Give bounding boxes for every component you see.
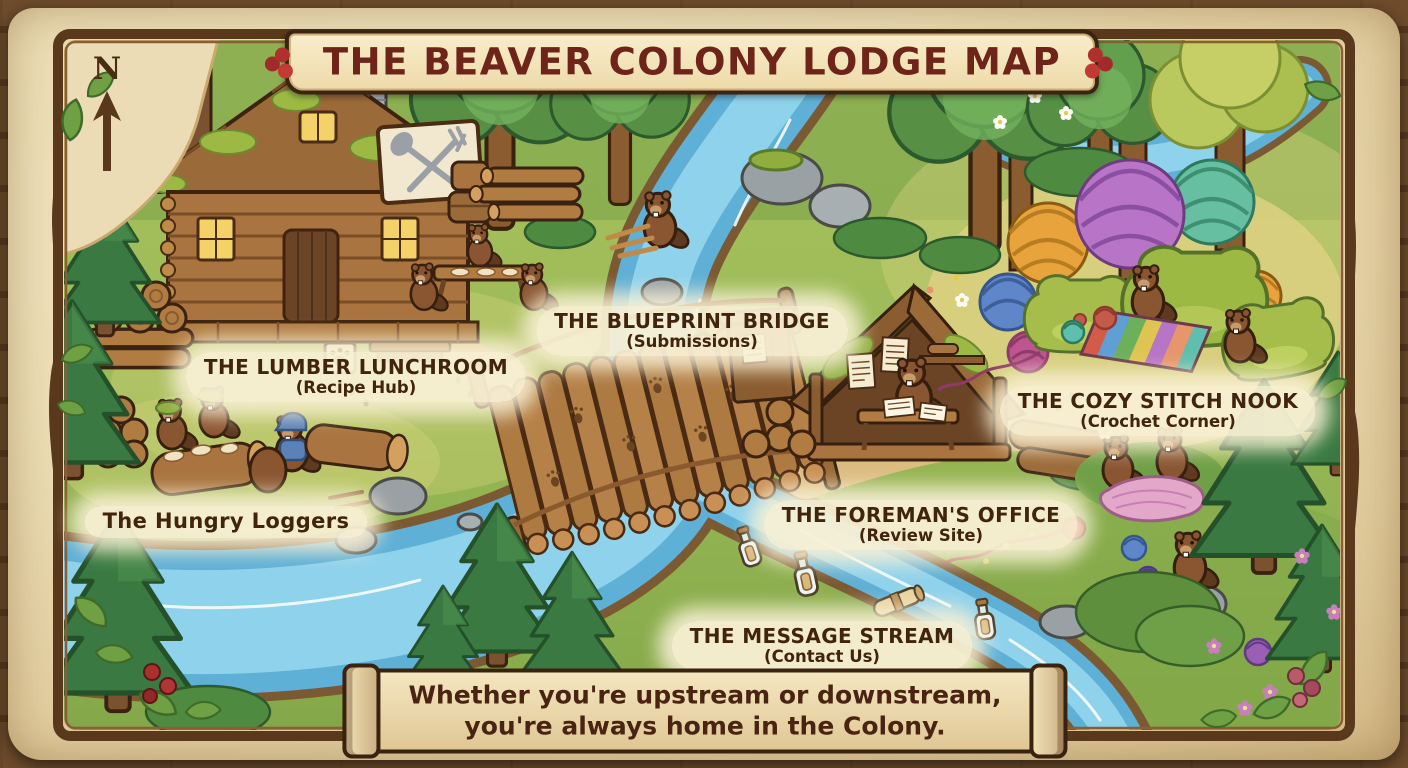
location-name: The Hungry Loggers — [103, 509, 350, 533]
map-title: THE BEAVER COLONY LODGE MAP — [323, 41, 1061, 84]
barrels-and-lumber — [449, 162, 583, 222]
footer-line-2: you're always home in the Colony. — [408, 711, 1001, 742]
location-label-cozy-stitch-nook[interactable]: THE COZY STITCH NOOK (Crochet Corner) — [1000, 386, 1316, 436]
location-subtitle: (Submissions) — [554, 332, 830, 351]
compass-label: N — [84, 54, 130, 85]
map-title-banner: THE BEAVER COLONY LODGE MAP — [285, 30, 1099, 95]
location-name: THE BLUEPRINT BRIDGE — [554, 309, 830, 333]
location-name: THE LUMBER LUNCHROOM — [204, 355, 508, 379]
location-subtitle: (Recipe Hub) — [204, 378, 508, 397]
location-label-message-stream[interactable]: THE MESSAGE STREAM (Contact Us) — [672, 621, 973, 671]
location-label-foremans-office[interactable]: THE FOREMAN'S OFFICE (Review Site) — [764, 500, 1078, 550]
footer-scroll: Whether you're upstream or downstream, y… — [360, 669, 1049, 754]
location-subtitle: (Review Site) — [782, 526, 1060, 545]
location-subtitle: (Contact Us) — [690, 647, 955, 666]
location-subtitle: (Crochet Corner) — [1018, 412, 1298, 431]
north-arrow-icon — [92, 89, 122, 175]
location-name: THE MESSAGE STREAM — [690, 624, 955, 648]
footer-line-1: Whether you're upstream or downstream, — [408, 681, 1001, 712]
porch-deck — [158, 322, 478, 342]
location-label-blueprint-bridge[interactable]: THE BLUEPRINT BRIDGE (Submissions) — [536, 306, 848, 356]
compass-north: N — [84, 54, 130, 179]
location-label-hungry-loggers[interactable]: The Hungry Loggers — [85, 506, 368, 538]
location-name: THE FOREMAN'S OFFICE — [782, 503, 1060, 527]
location-name: THE COZY STITCH NOOK — [1018, 389, 1298, 413]
location-label-lumber-lunchroom[interactable]: THE LUMBER LUNCHROOM (Recipe Hub) — [186, 352, 526, 402]
